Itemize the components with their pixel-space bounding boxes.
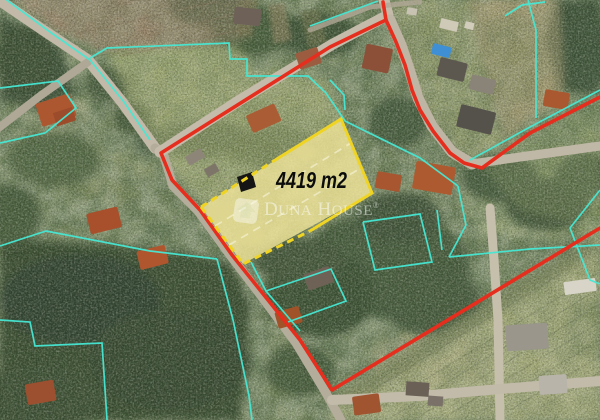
svg-text:4419 m2: 4419 m2 [275, 167, 347, 193]
svg-text:DUNA HOUSE®: DUNA HOUSE® [264, 199, 379, 220]
